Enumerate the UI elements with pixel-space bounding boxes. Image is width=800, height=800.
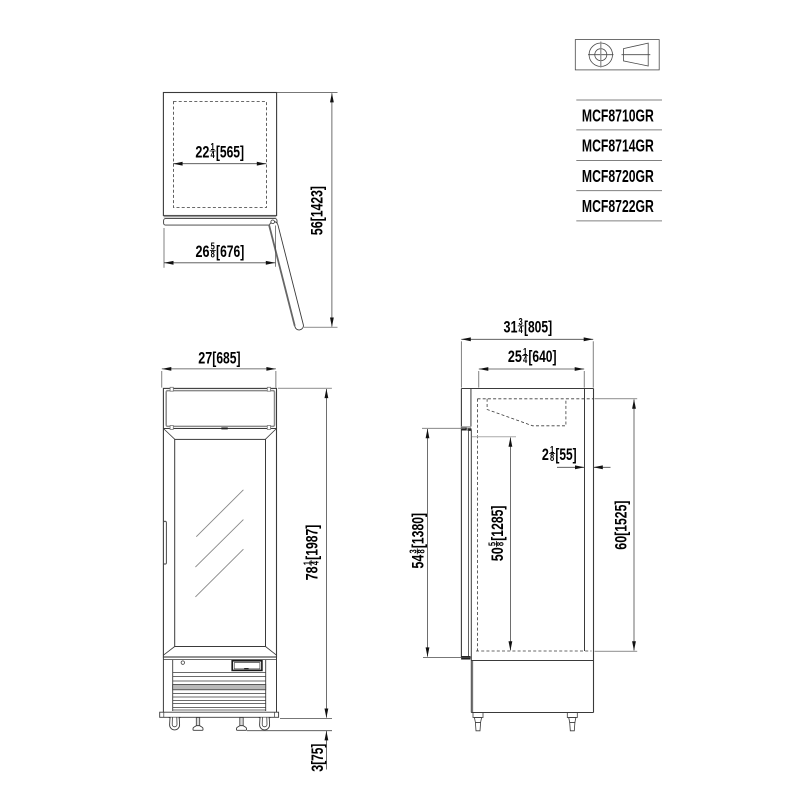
svg-text:[55]: [55]	[555, 446, 576, 464]
svg-text:8: 8	[211, 250, 216, 261]
svg-text:27: 27	[198, 350, 212, 368]
svg-text:56: 56	[309, 221, 327, 235]
svg-text:2: 2	[542, 446, 549, 464]
svg-text:3: 3	[309, 765, 327, 772]
svg-text:[640]: [640]	[528, 348, 556, 366]
svg-text:[75]: [75]	[309, 744, 327, 765]
svg-text:4: 4	[519, 325, 524, 336]
svg-text:4: 4	[310, 561, 321, 566]
svg-text:[685]: [685]	[212, 350, 240, 368]
svg-text:MCF8720GR: MCF8720GR	[582, 166, 654, 186]
svg-text:[1987]: [1987]	[304, 525, 322, 560]
svg-text:8: 8	[417, 549, 428, 554]
svg-text:[1285]: [1285]	[489, 506, 507, 541]
svg-text:[805]: [805]	[524, 318, 552, 336]
svg-text:50: 50	[489, 547, 507, 561]
svg-text:[565]: [565]	[216, 143, 244, 161]
svg-text:8: 8	[550, 453, 555, 464]
svg-text:78: 78	[304, 566, 322, 580]
svg-text:31: 31	[503, 318, 517, 336]
svg-text:4: 4	[210, 150, 215, 161]
svg-text:[676]: [676]	[216, 243, 244, 261]
svg-text:[1423]: [1423]	[309, 186, 327, 221]
svg-text:22: 22	[195, 143, 209, 161]
svg-text:MCF8714GR: MCF8714GR	[582, 136, 654, 156]
svg-text:54: 54	[410, 554, 428, 569]
svg-text:8: 8	[496, 542, 507, 547]
svg-text:4: 4	[523, 355, 528, 366]
svg-text:25: 25	[508, 348, 522, 366]
svg-text:MCF8722GR: MCF8722GR	[582, 196, 654, 216]
svg-text:MCF8710GR: MCF8710GR	[582, 105, 654, 125]
svg-text:26: 26	[196, 243, 210, 261]
svg-text:[1380]: [1380]	[410, 513, 428, 548]
svg-text:60: 60	[612, 536, 630, 550]
svg-text:[1525]: [1525]	[612, 501, 630, 536]
